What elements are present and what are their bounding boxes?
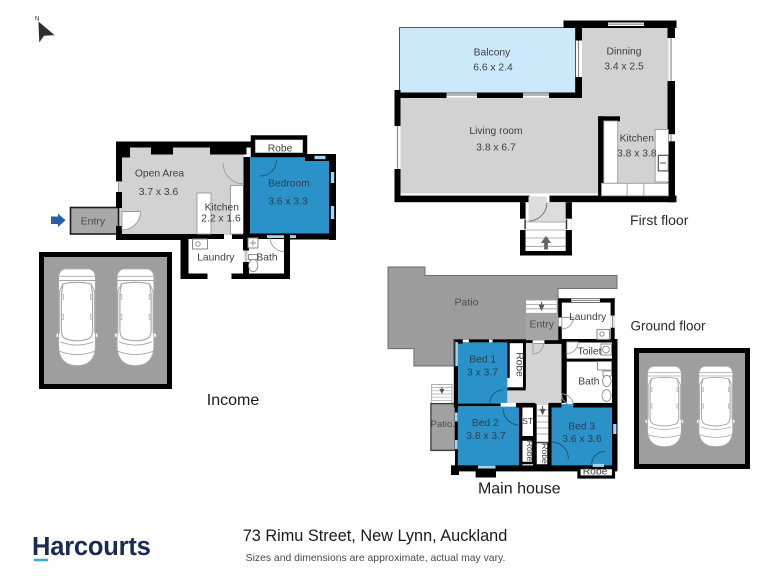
svg-text:Robe: Robe [514, 352, 525, 377]
svg-text:3.7 x 3.6: 3.7 x 3.6 [139, 187, 179, 198]
svg-text:N: N [35, 17, 39, 23]
svg-text:3.4 x 2.5: 3.4 x 2.5 [604, 62, 644, 73]
svg-text:First floor: First floor [630, 212, 689, 228]
svg-text:Dinning: Dinning [607, 46, 642, 57]
svg-text:3.8 x 3.8: 3.8 x 3.8 [617, 149, 657, 160]
svg-text:Kitchen: Kitchen [205, 203, 240, 214]
svg-text:Ground floor: Ground floor [630, 319, 706, 334]
svg-text:Balcony: Balcony [474, 47, 511, 58]
svg-text:Harcourts: Harcourts [32, 533, 151, 561]
svg-text:3.6 x 3.3: 3.6 x 3.3 [268, 197, 308, 208]
svg-text:Bed 1: Bed 1 [469, 355, 496, 366]
svg-text:Laundry: Laundry [569, 312, 607, 323]
svg-text:Bedroom: Bedroom [268, 179, 310, 190]
svg-text:Bath: Bath [578, 377, 599, 388]
svg-text:Robe: Robe [540, 443, 550, 464]
svg-text:3.8 x 3.7: 3.8 x 3.7 [466, 431, 506, 442]
svg-text:Bed 2: Bed 2 [472, 418, 499, 429]
svg-text:Sizes and dimensions are appro: Sizes and dimensions are approximate, ac… [246, 553, 506, 564]
svg-text:Open Area: Open Area [135, 169, 185, 180]
svg-text:2.2 x 1.6: 2.2 x 1.6 [201, 214, 241, 225]
svg-text:Entry: Entry [529, 319, 554, 331]
svg-text:ST: ST [522, 416, 534, 426]
svg-text:Bed 3: Bed 3 [568, 422, 595, 433]
svg-text:Bath: Bath [256, 252, 277, 263]
svg-text:Main house: Main house [478, 481, 561, 498]
svg-text:Toilet: Toilet [577, 347, 601, 358]
svg-text:3.6 x 3.6: 3.6 x 3.6 [562, 434, 602, 445]
svg-text:6.6 x 2.4: 6.6 x 2.4 [473, 62, 513, 73]
svg-text:Entry: Entry [81, 216, 106, 228]
svg-text:Patio.: Patio. [431, 419, 455, 430]
svg-text:Kitchen: Kitchen [620, 133, 655, 144]
svg-text:Patio: Patio [455, 297, 479, 309]
svg-text:Laundry: Laundry [197, 252, 235, 263]
svg-text:3.8 x 6.7: 3.8 x 6.7 [476, 143, 516, 154]
svg-text:Robe: Robe [525, 441, 535, 462]
svg-text:Income: Income [207, 392, 260, 409]
svg-text:Living room: Living room [469, 126, 522, 137]
svg-text:3 x 3.7: 3 x 3.7 [467, 368, 498, 379]
svg-text:Robe: Robe [583, 467, 608, 478]
svg-text:Robe: Robe [268, 144, 293, 155]
svg-text:73 Rimu Street, New Lynn, Auck: 73 Rimu Street, New Lynn, Auckland [243, 527, 508, 545]
